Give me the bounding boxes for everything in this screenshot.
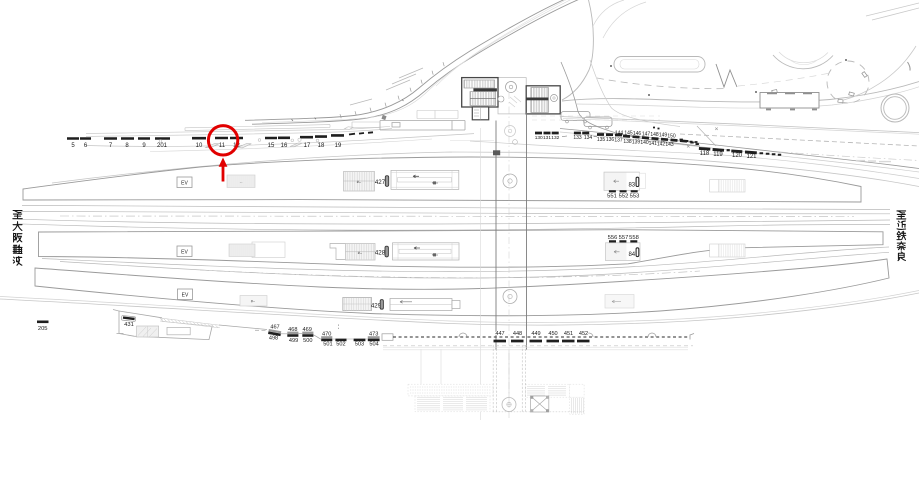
svg-text:18: 18	[318, 143, 325, 149]
svg-text:451: 451	[564, 331, 573, 337]
svg-text:501: 501	[323, 342, 332, 348]
svg-text:118: 118	[700, 151, 710, 157]
svg-text:136: 136	[606, 137, 615, 143]
svg-text:551: 551	[607, 194, 617, 200]
svg-text:131: 131	[543, 135, 551, 141]
svg-text:17: 17	[304, 143, 311, 149]
svg-text:119: 119	[713, 152, 723, 158]
svg-text:#--: #--	[251, 300, 255, 304]
svg-text:504: 504	[369, 342, 378, 348]
svg-text:499: 499	[289, 338, 298, 344]
svg-text:205: 205	[38, 326, 48, 332]
svg-text:452: 452	[579, 331, 588, 337]
svg-text:503: 503	[355, 342, 364, 348]
svg-text:19: 19	[335, 143, 342, 149]
svg-text:448: 448	[513, 331, 522, 337]
svg-text:143: 143	[665, 142, 674, 148]
svg-text:149: 149	[659, 133, 668, 139]
svg-text:140: 140	[640, 140, 649, 146]
svg-text:121: 121	[746, 154, 757, 160]
svg-text:120: 120	[732, 153, 743, 159]
svg-text:142: 142	[657, 141, 666, 147]
svg-text:EV: EV	[182, 293, 189, 299]
svg-text:15: 15	[268, 143, 275, 149]
svg-text:470: 470	[322, 332, 331, 338]
svg-text:134: 134	[584, 135, 593, 141]
svg-text:201: 201	[157, 143, 168, 149]
svg-text:431: 431	[124, 322, 134, 328]
svg-text:553: 553	[630, 194, 640, 200]
svg-text:138: 138	[623, 139, 632, 145]
svg-text:552: 552	[619, 194, 629, 200]
svg-text:...: ...	[240, 180, 243, 184]
svg-text:427: 427	[375, 179, 386, 186]
svg-text:502: 502	[336, 342, 345, 348]
svg-text:428: 428	[375, 250, 386, 257]
svg-text:135: 135	[597, 137, 606, 143]
svg-text:16: 16	[281, 143, 288, 149]
svg-text:139: 139	[632, 140, 641, 146]
svg-text:11: 11	[219, 143, 226, 149]
svg-text:447: 447	[495, 331, 504, 337]
svg-text:450: 450	[548, 331, 557, 337]
svg-text:83: 83	[628, 182, 635, 188]
svg-text:84: 84	[628, 252, 635, 258]
svg-text:130: 130	[535, 135, 543, 141]
svg-text:467: 467	[270, 325, 279, 331]
svg-text:498: 498	[269, 336, 278, 342]
svg-text:133: 133	[573, 135, 582, 141]
svg-text:137: 137	[614, 138, 623, 144]
svg-text:132: 132	[551, 135, 559, 141]
svg-text:EV: EV	[181, 181, 188, 187]
svg-text:468: 468	[288, 327, 297, 333]
svg-text:150: 150	[667, 133, 676, 139]
svg-text:449: 449	[531, 331, 540, 337]
svg-text:473: 473	[369, 332, 378, 338]
svg-text:144: 144	[615, 130, 624, 136]
svg-text:10: 10	[196, 143, 203, 149]
svg-text:500: 500	[303, 338, 312, 344]
svg-text:469: 469	[303, 327, 312, 333]
svg-text:EV: EV	[181, 250, 188, 256]
